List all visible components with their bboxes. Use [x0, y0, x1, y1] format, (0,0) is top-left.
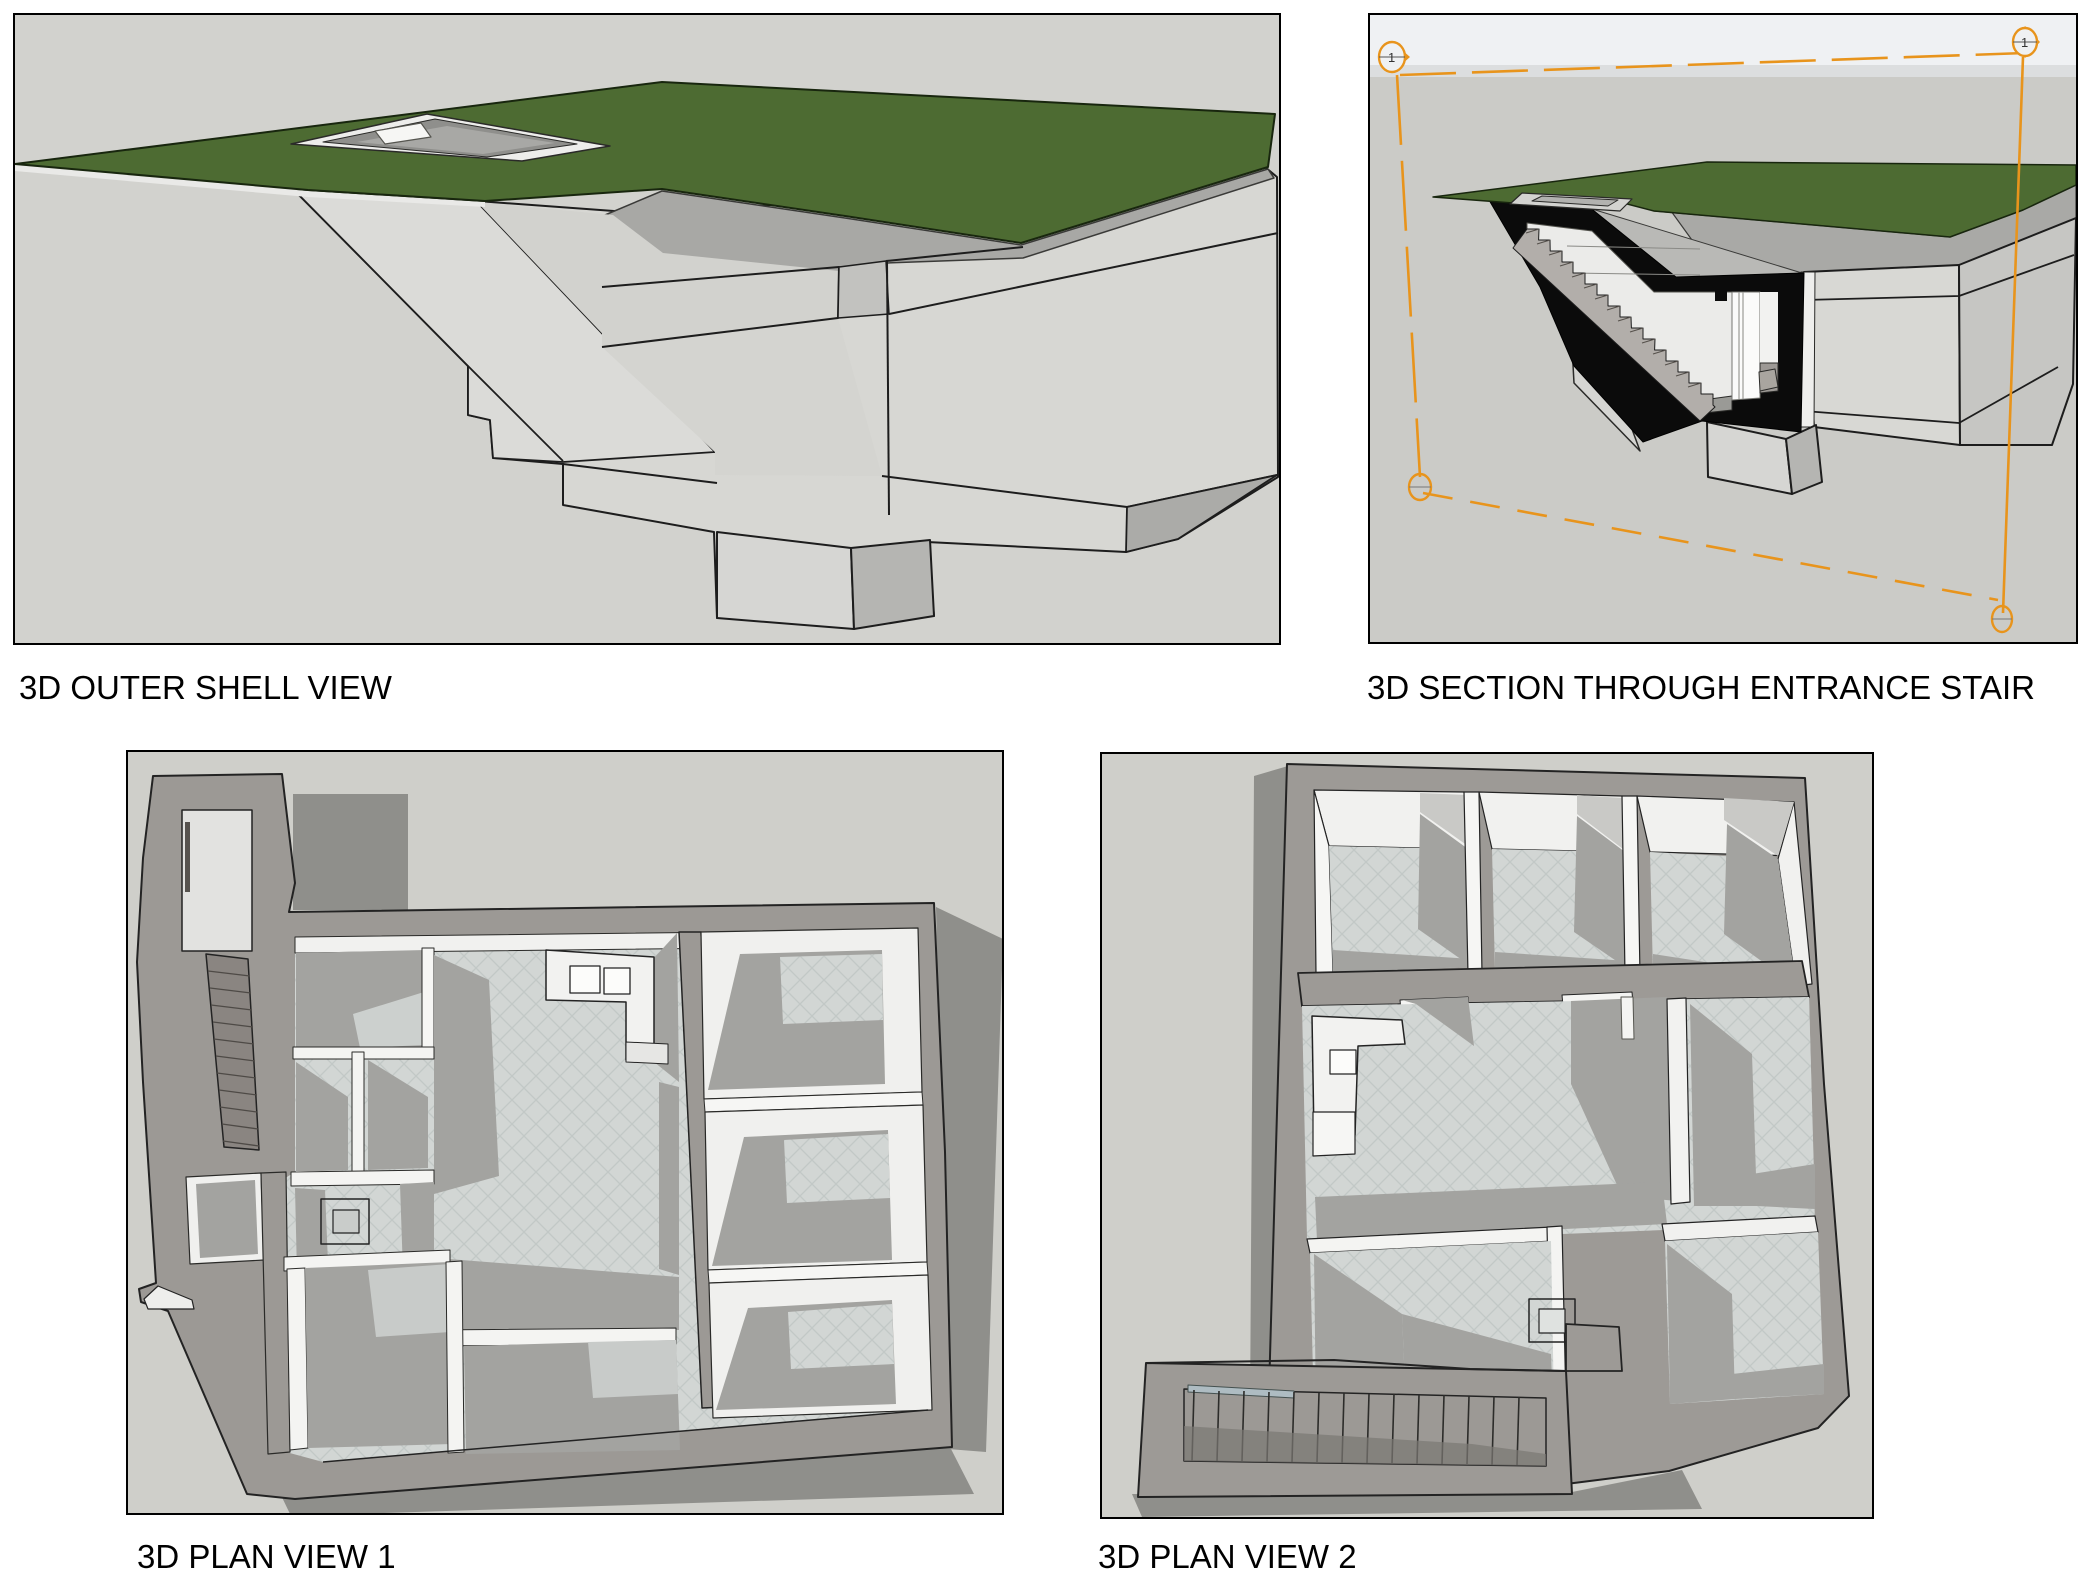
- svg-text:1: 1: [1388, 50, 1395, 65]
- svg-text:1: 1: [2021, 35, 2028, 50]
